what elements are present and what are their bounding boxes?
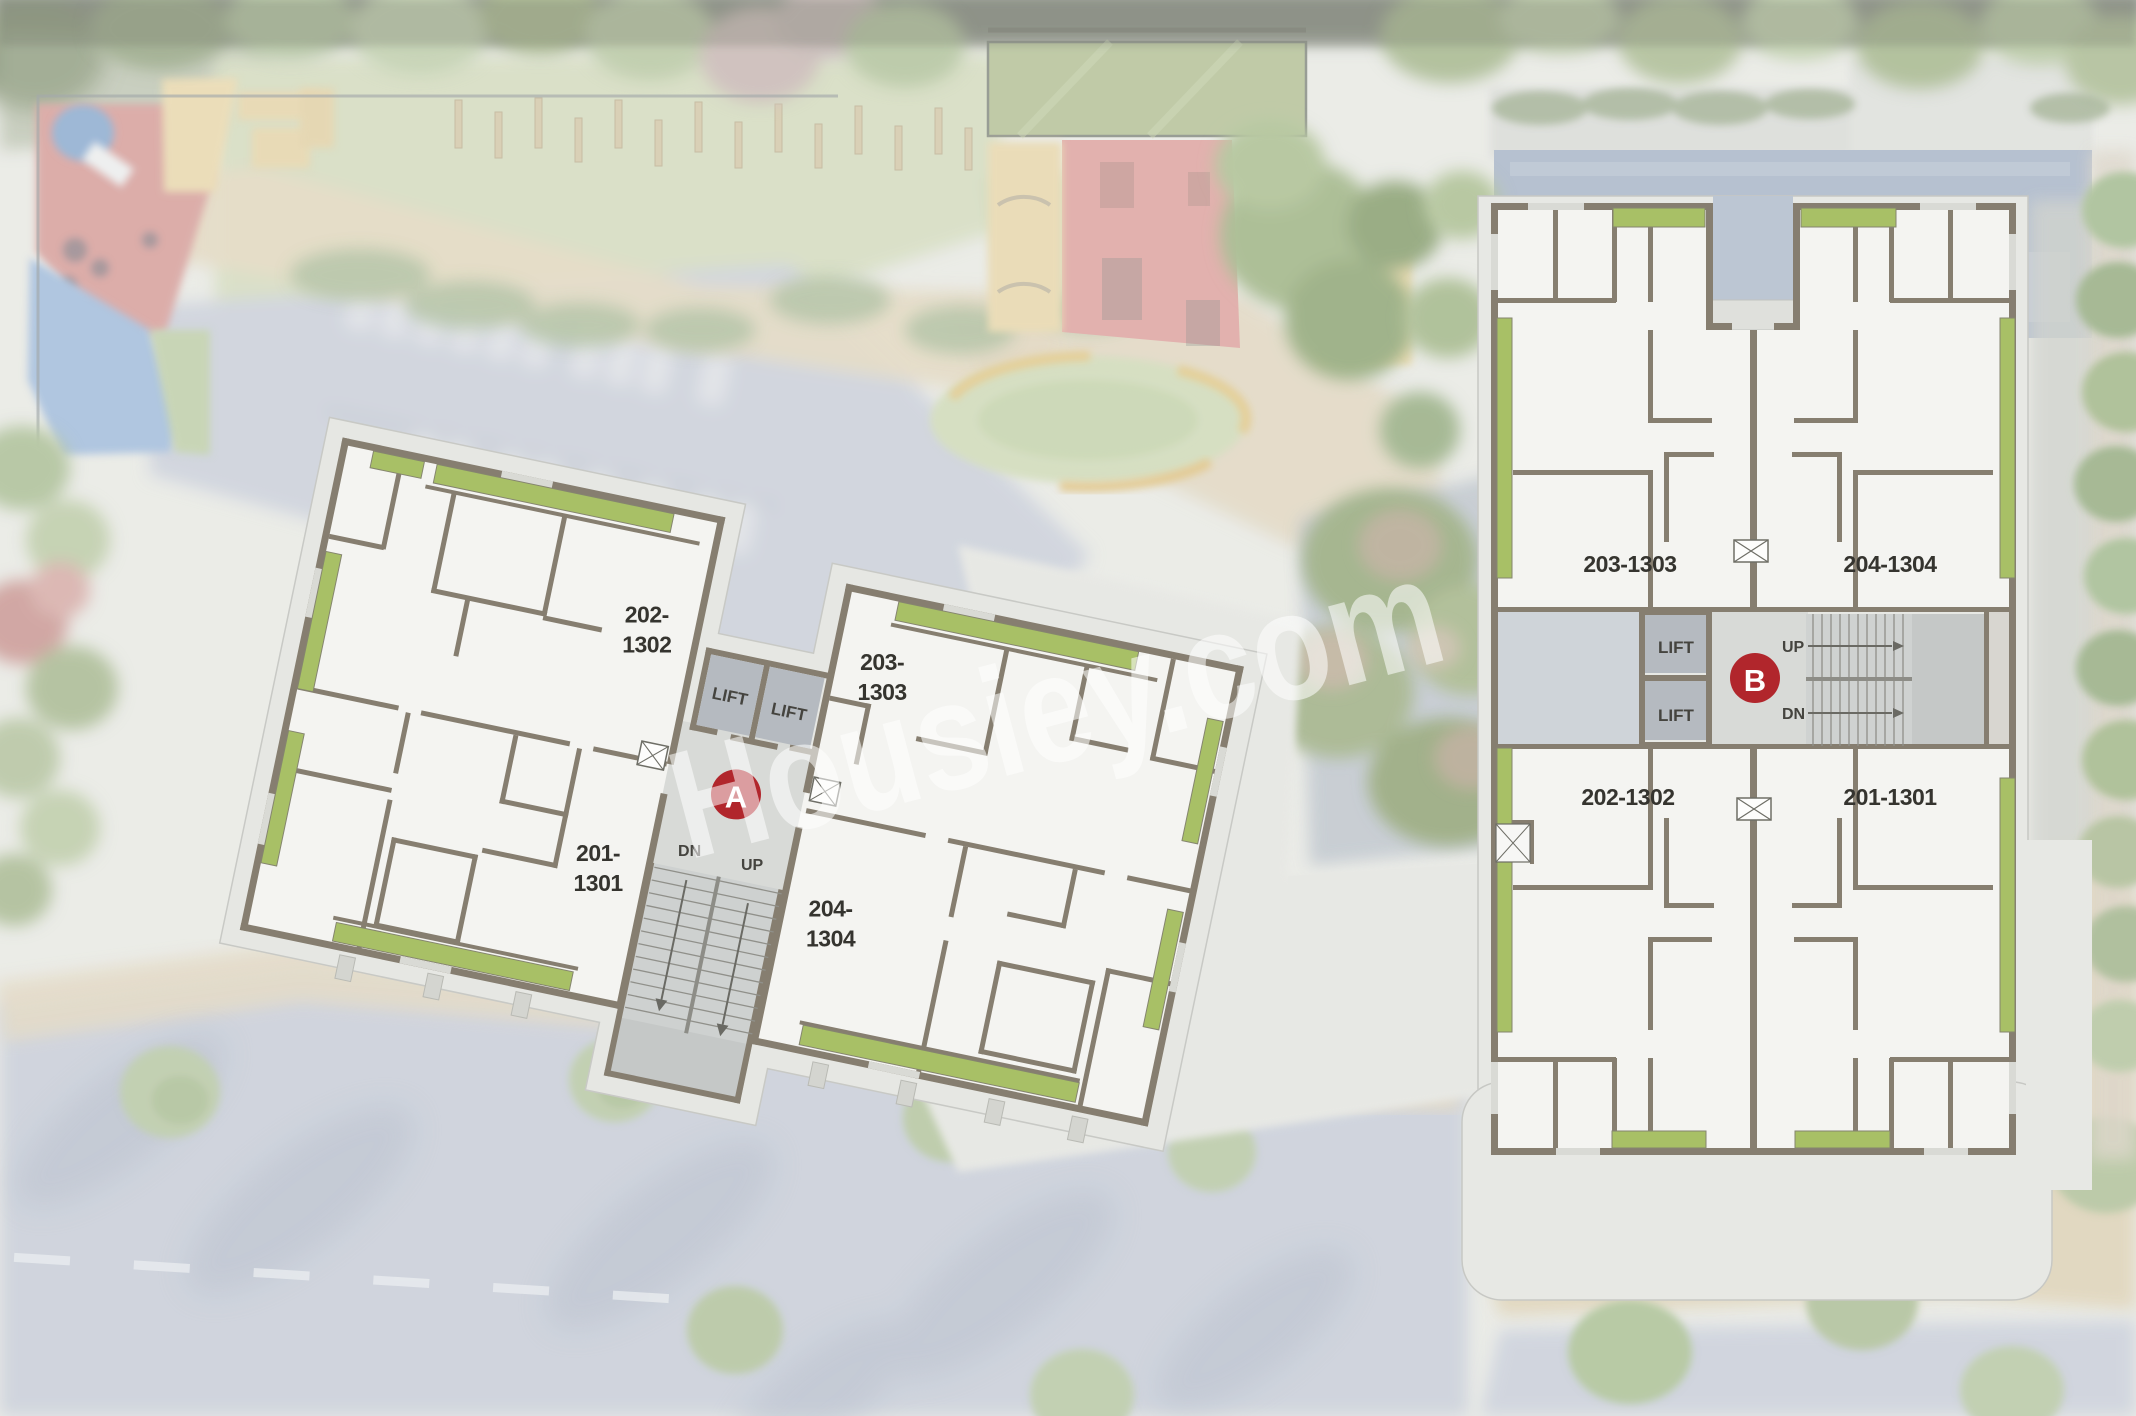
svg-text:204-1304: 204-1304 xyxy=(1843,551,1937,577)
svg-text:204-: 204- xyxy=(809,895,853,921)
svg-text:B: B xyxy=(1744,663,1766,698)
svg-text:1302: 1302 xyxy=(622,632,671,658)
svg-text:UP: UP xyxy=(1782,639,1805,656)
svg-text:201-: 201- xyxy=(576,840,620,866)
svg-text:DN: DN xyxy=(1782,706,1805,723)
svg-text:202-: 202- xyxy=(625,602,669,628)
svg-text:1304: 1304 xyxy=(806,925,856,951)
svg-text:202-1302: 202-1302 xyxy=(1581,784,1674,810)
svg-text:1301: 1301 xyxy=(573,870,623,896)
svg-text:LIFT: LIFT xyxy=(1658,706,1694,725)
svg-text:LIFT: LIFT xyxy=(1658,638,1694,657)
svg-text:201-1301: 201-1301 xyxy=(1843,784,1937,810)
svg-text:203-1303: 203-1303 xyxy=(1583,551,1676,577)
